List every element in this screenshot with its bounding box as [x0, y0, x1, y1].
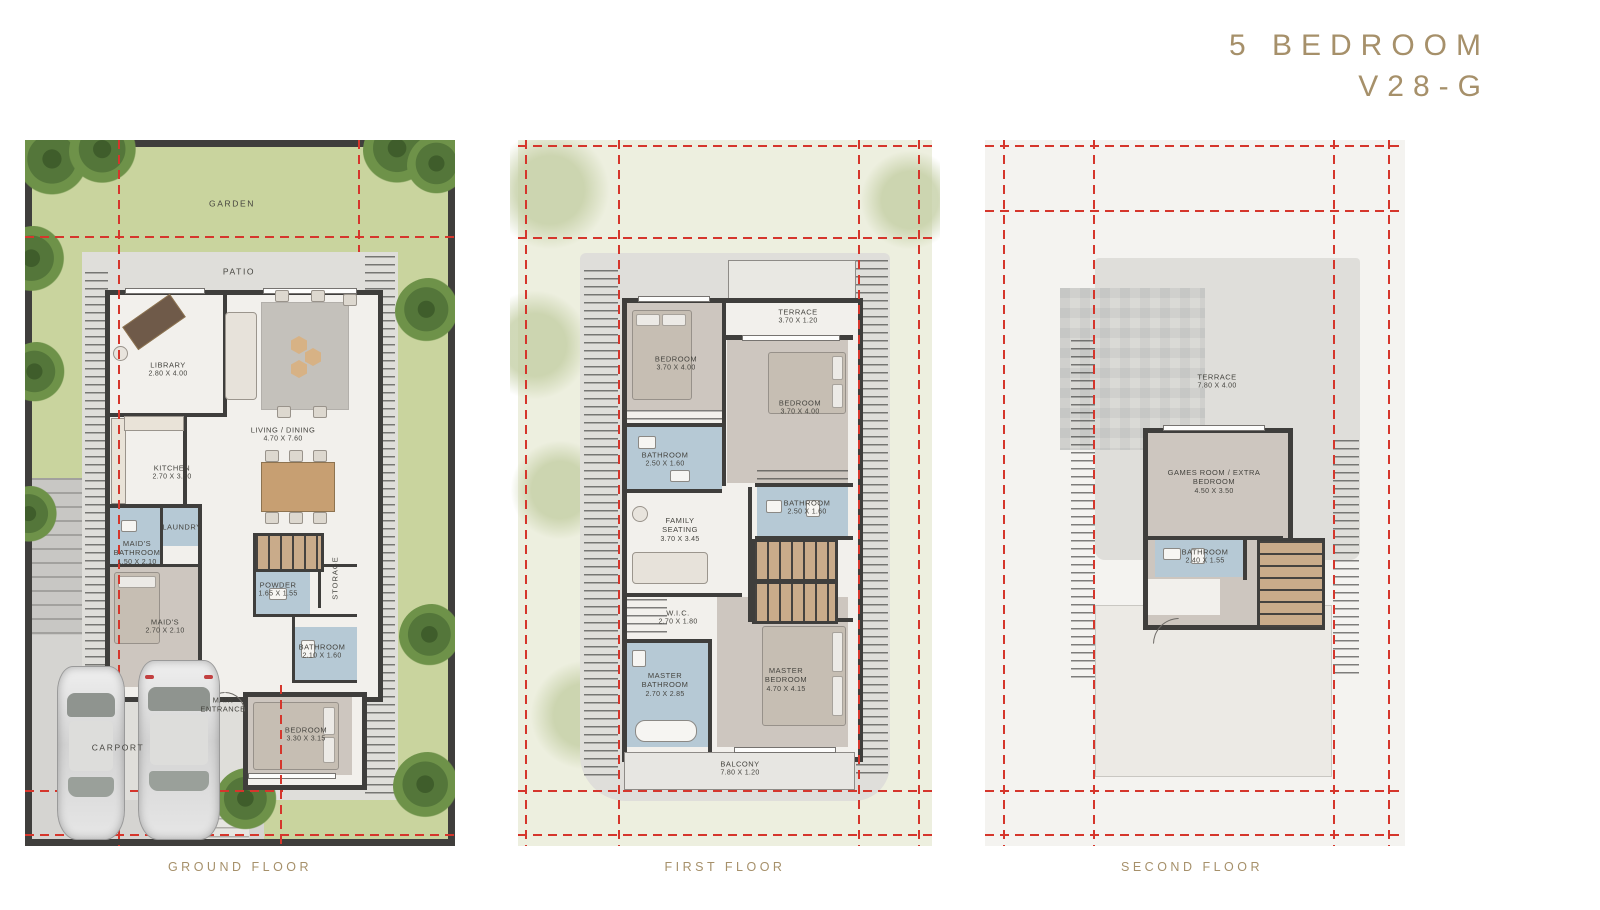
- pillow-icon: [662, 314, 686, 326]
- room-label-bathroom-right: BATHROOM2.50 X 1.60: [775, 498, 839, 517]
- staircase: [1257, 538, 1325, 630]
- room-label-bedroom-left: BEDROOM3.70 X 4.00: [641, 354, 711, 373]
- car-windshield: [67, 693, 115, 717]
- setback-line: [518, 145, 932, 147]
- dining-chair-icon: [313, 450, 327, 462]
- setback-line: [618, 140, 620, 846]
- pillow-icon: [832, 676, 843, 716]
- armchair-icon: [313, 406, 327, 418]
- wall-partition: [627, 593, 742, 597]
- kitchen-counter-icon: [124, 416, 184, 431]
- armchair-icon: [311, 290, 325, 302]
- car-rear-window: [68, 777, 114, 797]
- caption-first-floor: FIRST FLOOR: [665, 860, 786, 874]
- window: [638, 296, 710, 302]
- window: [742, 335, 840, 341]
- setback-line: [985, 790, 1405, 792]
- setback-line: [985, 145, 1405, 147]
- window: [1163, 425, 1265, 431]
- room-label-storage: STORAGE: [330, 556, 339, 600]
- louver-strip-left: [584, 270, 618, 780]
- setback-line: [1333, 140, 1335, 846]
- car-light-icon: [204, 675, 213, 679]
- wall-partition: [253, 614, 357, 617]
- library-stool-icon: [113, 346, 128, 361]
- wall-partition: [722, 298, 726, 486]
- car-icon: [138, 660, 220, 840]
- dining-chair-icon: [265, 450, 279, 462]
- pillow-icon: [118, 576, 156, 588]
- tree-icon: [393, 752, 455, 822]
- pillow-icon: [832, 356, 843, 380]
- dining-chair-icon: [313, 512, 327, 524]
- room-label-library: LIBRARY2.80 X 4.00: [133, 360, 203, 379]
- room-label-living-dining: LIVING / DINING4.70 X 7.60: [233, 425, 333, 444]
- first-floor-plan: TERRACE3.70 X 1.20 BEDROOM3.70 X 4.00 BE…: [510, 140, 940, 846]
- wall-partition: [708, 639, 712, 752]
- room-label-wic: W.I.C.2.70 X 1.80: [638, 608, 718, 627]
- side-table-icon: [632, 506, 648, 522]
- second-floor-plan: TERRACE7.80 X 4.00 GAMES ROOM / EXTRA BE…: [985, 140, 1405, 846]
- room-label-terrace: TERRACE7.80 X 4.00: [1177, 372, 1257, 391]
- staircase-upper-flight: [752, 539, 838, 582]
- pillow-icon: [832, 632, 843, 672]
- louver-strip-right: [1333, 440, 1359, 680]
- room-label-garden: GARDEN: [209, 199, 255, 210]
- armchair-icon: [275, 290, 289, 302]
- wall-partition: [755, 483, 853, 487]
- room-label-laundry: LAUNDRY: [160, 522, 204, 531]
- lower-roof-slab: [1095, 605, 1332, 777]
- window: [248, 773, 336, 779]
- setback-line: [918, 140, 920, 846]
- room-label-master-bedroom: MASTER BEDROOM4.70 X 4.15: [755, 666, 817, 695]
- ground-floor-plan: GARDEN PATIO LIBRARY2.80 X 4.00 LIVING /…: [25, 140, 455, 846]
- caption-ground-floor: GROUND FLOOR: [168, 860, 312, 874]
- setback-line: [858, 140, 860, 846]
- wall-partition: [627, 489, 722, 493]
- room-label-master-bathroom: MASTER BATHROOM2.70 X 2.85: [635, 671, 695, 700]
- setback-line: [518, 790, 932, 792]
- setback-line: [525, 140, 527, 846]
- tree-icon: [395, 278, 455, 346]
- room-label-family-seating: FAMILY SEATING3.70 X 3.45: [652, 516, 708, 545]
- stair-landing: [1148, 579, 1220, 615]
- armchair-icon: [277, 406, 291, 418]
- plan-title-line1: 5 BEDROOM: [1229, 26, 1490, 67]
- window: [125, 288, 205, 294]
- wall-partition: [627, 423, 722, 427]
- plan-title-line2: V28-G: [1229, 67, 1490, 108]
- toilet-icon: [632, 650, 646, 667]
- room-label-carport: CARPORT: [92, 743, 145, 754]
- sofa-icon: [632, 552, 708, 584]
- sofa-icon: [225, 312, 257, 400]
- car-roof: [150, 715, 208, 765]
- dining-table-icon: [261, 462, 335, 512]
- room-label-bathroom-left: BATHROOM2.50 X 1.60: [633, 450, 697, 469]
- room-label-bathroom: BATHROOM2.10 X 1.60: [290, 642, 354, 661]
- setback-line: [518, 834, 932, 836]
- room-label-patio: PATIO: [223, 267, 255, 278]
- room-label-bedroom-right: BEDROOM3.70 X 4.00: [765, 398, 835, 417]
- sink-icon: [121, 520, 137, 532]
- setback-line: [1003, 140, 1005, 846]
- room-label-terrace: TERRACE3.70 X 1.20: [758, 307, 838, 326]
- wall-partition: [627, 639, 710, 643]
- wall-partition: [292, 680, 357, 683]
- room-label-maids: MAID'S2.70 X 2.10: [130, 617, 200, 636]
- staircase-lower-flight: [752, 581, 838, 624]
- window: [734, 747, 836, 753]
- room-label-bedroom: BEDROOM3.30 X 3.15: [271, 725, 341, 744]
- setback-line: [518, 237, 932, 239]
- car-light-icon: [145, 675, 154, 679]
- room-label-kitchen: KITCHEN2.70 X 3.50: [137, 463, 207, 482]
- plan-title: 5 BEDROOM V28-G: [1229, 26, 1490, 107]
- room-label-balcony: BALCONY7.80 X 1.20: [700, 759, 780, 778]
- setback-line: [25, 236, 455, 238]
- setback-line: [1093, 140, 1095, 846]
- car-rear-window: [149, 771, 209, 791]
- setback-line: [1388, 140, 1390, 846]
- room-label-main-entrance: MAIN ENTRANCE: [192, 696, 254, 715]
- dining-chair-icon: [265, 512, 279, 524]
- armchair-icon: [343, 294, 357, 306]
- wall-partition: [110, 504, 200, 508]
- room-label-games-room: GAMES ROOM / EXTRA BEDROOM4.50 X 3.50: [1159, 468, 1269, 497]
- room-label-powder: POWDER1.65 X 1.55: [247, 580, 309, 599]
- vanity-icon: [670, 470, 690, 482]
- setback-line: [280, 685, 282, 846]
- bathtub-icon: [635, 720, 697, 742]
- setback-line: [985, 834, 1405, 836]
- sink-icon: [638, 436, 656, 449]
- dining-chair-icon: [289, 450, 303, 462]
- floor-plan-sheet: 5 BEDROOM V28-G: [0, 0, 1600, 910]
- room-label-maids-bathroom: MAID'S BATHROOM1.50 X 2.10: [108, 539, 166, 568]
- wall-partition: [1243, 538, 1247, 580]
- setback-line: [985, 210, 1405, 212]
- dining-chair-icon: [289, 512, 303, 524]
- pillow-icon: [636, 314, 660, 326]
- caption-second-floor: SECOND FLOOR: [1121, 860, 1263, 874]
- louver-strip-left: [1071, 340, 1095, 680]
- staircase: [253, 533, 324, 572]
- room-label-bathroom: BATHROOM2.40 X 1.55: [1170, 547, 1240, 566]
